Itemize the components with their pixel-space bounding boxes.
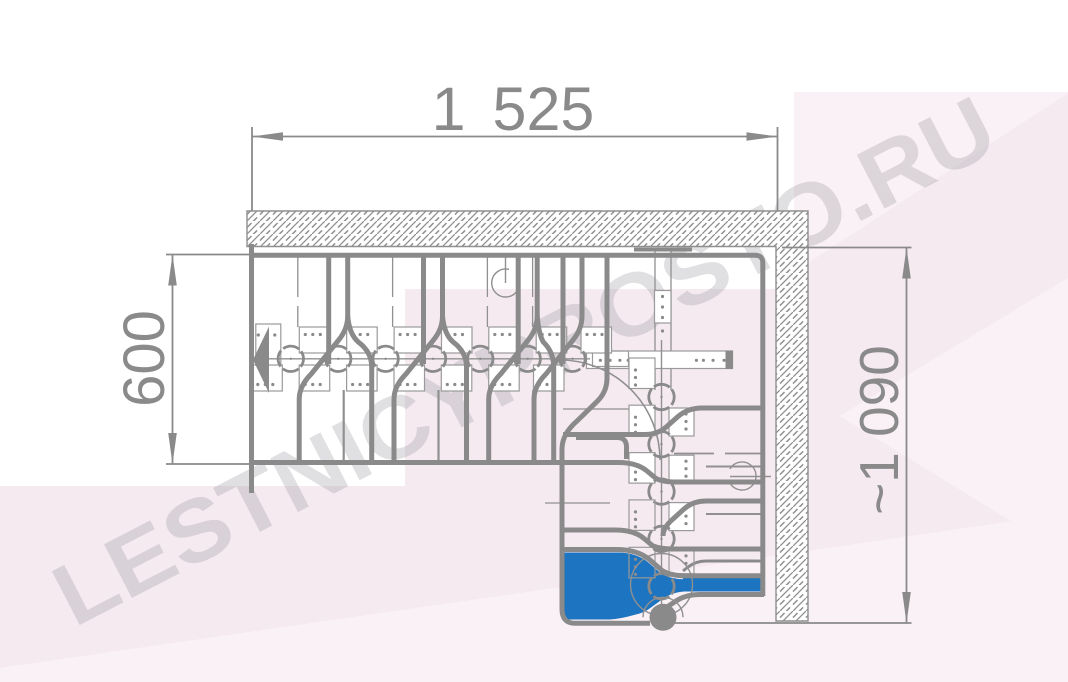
svg-text:~1 090: ~1 090 bbox=[848, 345, 910, 515]
svg-text:1 525: 1 525 bbox=[432, 75, 595, 143]
svg-text:600: 600 bbox=[112, 310, 177, 407]
